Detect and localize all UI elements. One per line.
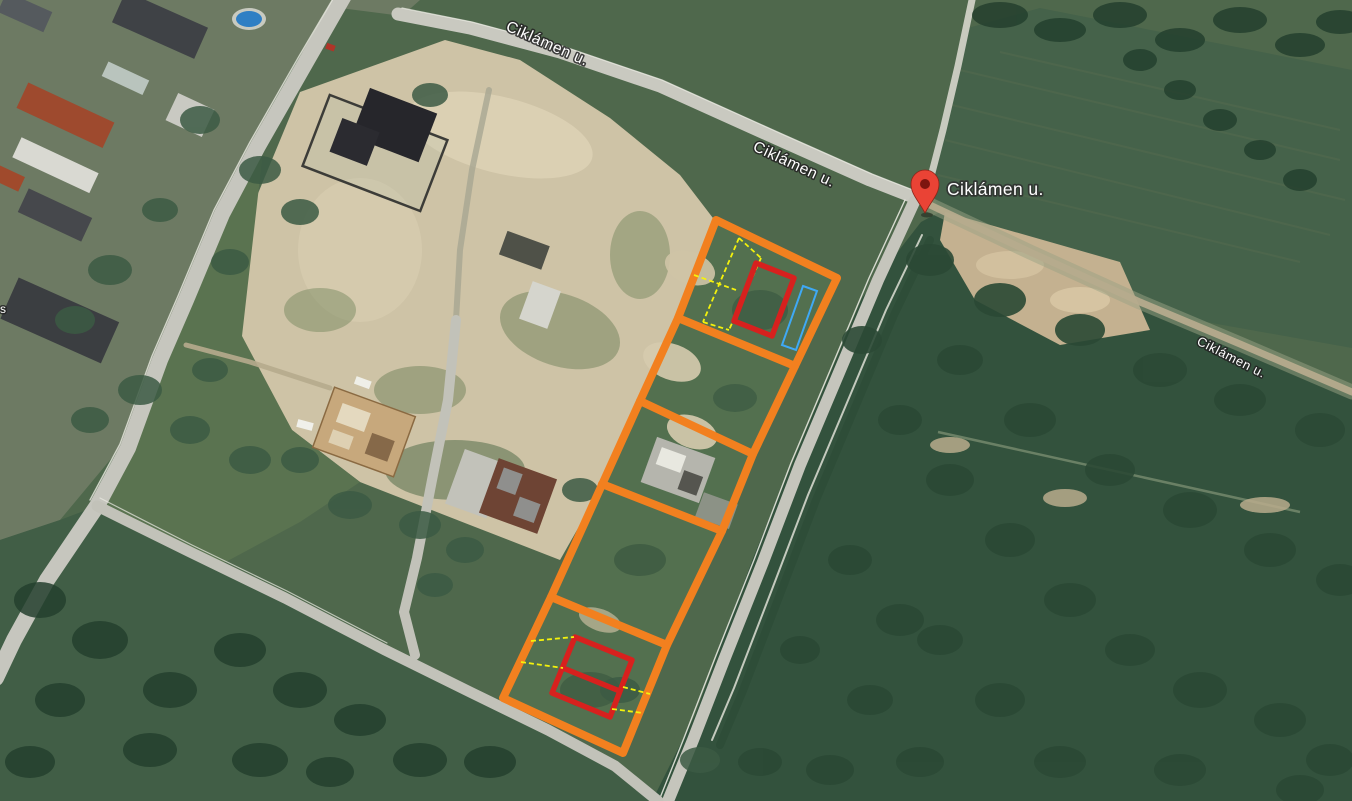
satellite-map-canvas[interactable]: s Ciklámen u. Ciklámen u. Ciklámen u. Ci… <box>0 0 1352 801</box>
swimming-pool <box>236 11 262 27</box>
edge-label-partial: s <box>0 302 7 316</box>
pin-label: Ciklámen u. <box>947 179 1044 199</box>
